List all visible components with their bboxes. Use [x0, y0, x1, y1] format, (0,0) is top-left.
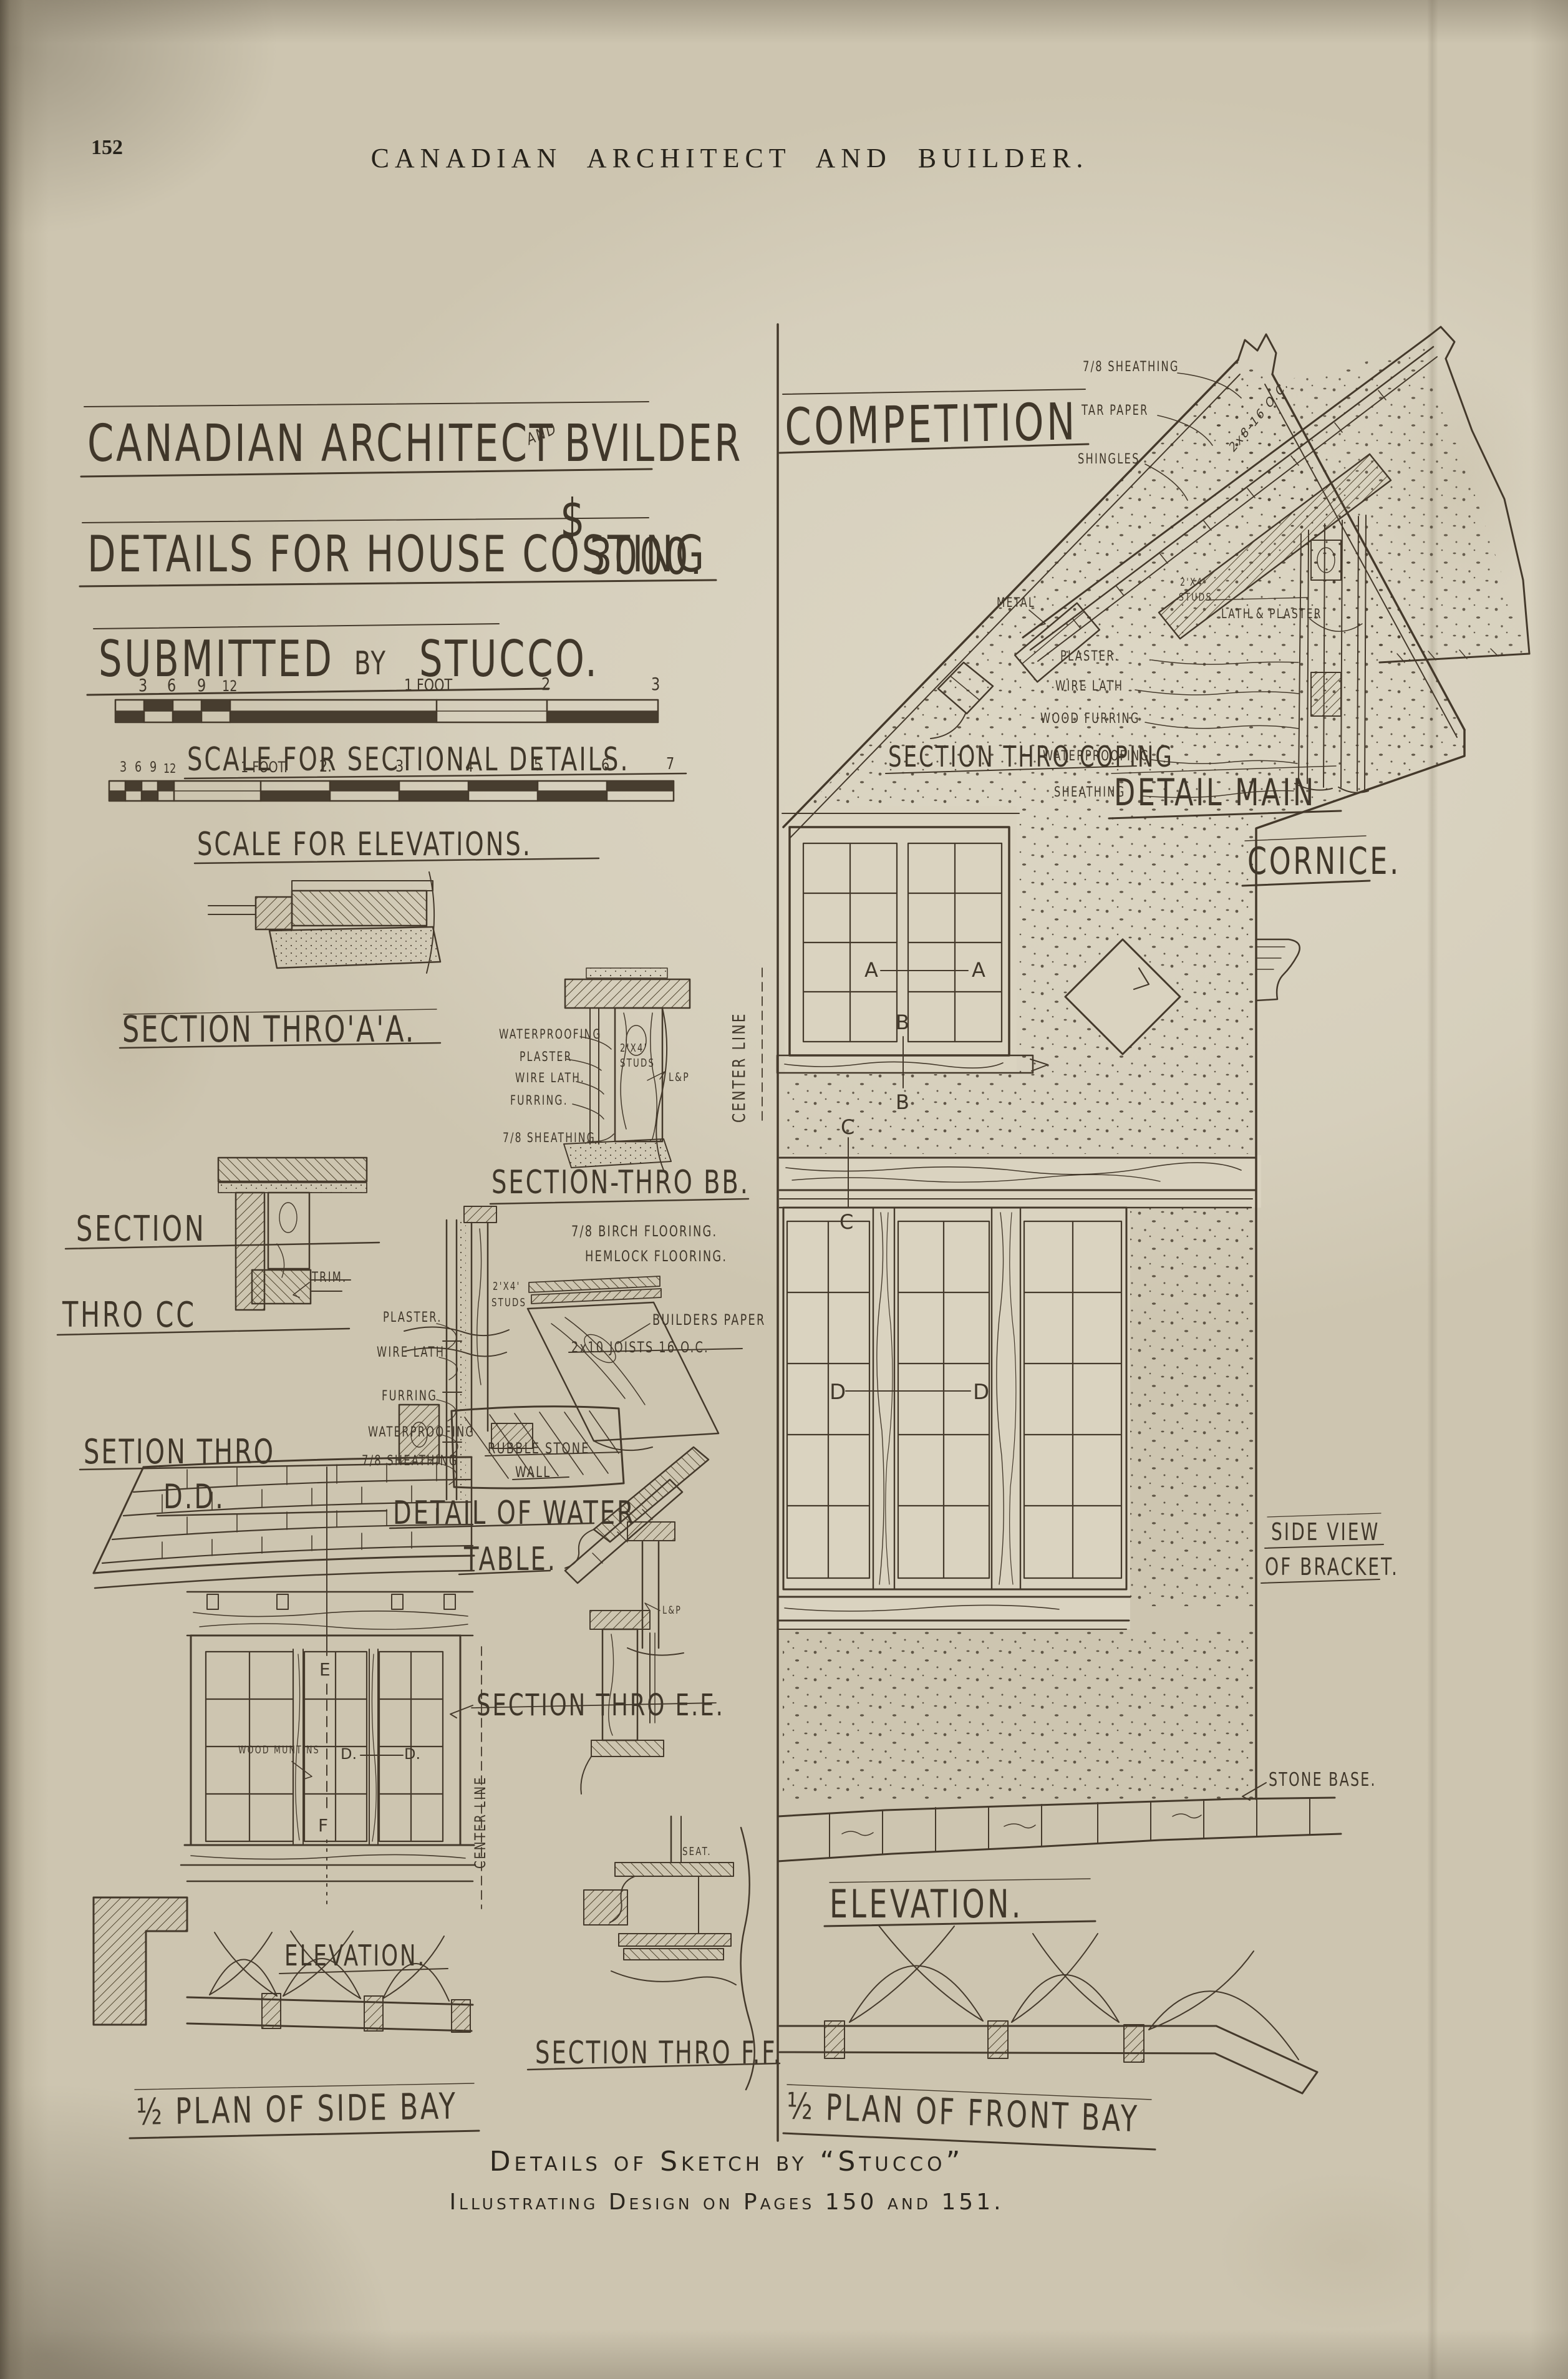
section-bb-label: SECTION-THRO BB.	[491, 1164, 750, 1201]
section-ee-ff-drawing	[450, 1611, 780, 2090]
scale-tick: 1 FOOT.	[241, 758, 288, 776]
scale-tick: 9	[197, 675, 206, 695]
callout: L&P	[669, 1070, 690, 1084]
side-bay-elevation-label: ELEVATION.	[284, 1939, 426, 1972]
trim-callout: TRIM.	[312, 1270, 347, 1286]
coping-label: SECTION THRO COPING	[888, 740, 1174, 773]
scale-tick: 7	[666, 755, 674, 773]
section-ff-label: SECTION THRO F.F.	[535, 2035, 782, 2071]
callout: 2x10 JOISTS 16 O.C.	[571, 1339, 709, 1356]
marker-d-side: D.	[341, 1745, 357, 1763]
scale-tick: 12	[163, 761, 176, 776]
wood-muntins-callout: WOOD MUNTINS	[238, 1744, 320, 1756]
scale-tick: 4	[465, 757, 473, 776]
bracket-label2: OF BRACKET.	[1265, 1553, 1399, 1581]
lath-plaster-callout: LATH & PLASTER	[1221, 606, 1322, 621]
stone-base-label: STONE BASE.	[1269, 1769, 1377, 1791]
section-ee-label: SECTION THRO E.E.	[477, 1688, 725, 1723]
center-line-label-main: CENTER LINE	[728, 1012, 749, 1123]
marker-c: C	[841, 1115, 854, 1139]
scanned-plate-page: 152 CANADIAN ARCHITECT AND BUILDER. CANA…	[0, 0, 1568, 2379]
scale-tick: 3	[395, 757, 404, 776]
scale-tick: 3	[120, 760, 127, 775]
callout: WIRE LATH.	[377, 1345, 449, 1360]
water-table-label1: DETAIL OF WATER	[393, 1495, 636, 1532]
marker-d: D	[973, 1380, 989, 1405]
scale-tick: 6	[601, 756, 609, 775]
plate-title-by: BY	[354, 645, 387, 682]
marker-f: F	[318, 1815, 328, 1836]
plate-title-cost: 3000.	[589, 528, 704, 586]
callout: WATERPROOFING	[368, 1425, 475, 1440]
plate-title-line3: SUBMITTED	[99, 630, 334, 688]
rubble-wall-label1: RUBBLE STONE	[488, 1440, 590, 1457]
callout: HEMLOCK FLOORING.	[585, 1248, 727, 1265]
callout: FURRING.	[510, 1093, 568, 1108]
callout: PLASTER.	[383, 1310, 442, 1325]
callout: 2'X4'	[620, 1042, 648, 1055]
page-number: 152	[91, 136, 123, 160]
scale-tick: 6	[167, 675, 176, 695]
callout: SHINGLES	[1078, 452, 1140, 467]
scale-tick: 3	[651, 674, 660, 694]
marker-d: D	[830, 1380, 846, 1405]
callout: WIRE LATH.	[515, 1070, 585, 1085]
marker-a: A	[864, 958, 878, 982]
water-table-label2: TABLE.	[464, 1541, 557, 1578]
scale-tick: 2	[541, 674, 550, 694]
scale-elevations-label: SCALE FOR ELEVATIONS.	[197, 826, 532, 863]
scale-tick: 12	[222, 677, 237, 695]
scale-tick: 2.	[319, 757, 332, 776]
callout: STUDS	[620, 1057, 655, 1070]
cornice-label2: CORNICE.	[1247, 840, 1401, 883]
caption-line2: Illustrating Design on Pages 150 and 151…	[249, 2189, 1204, 2215]
marker-b: B	[896, 1090, 909, 1114]
callout: FURRING	[382, 1388, 437, 1404]
callout: WATERPROOFING	[499, 1027, 602, 1042]
center-line-label-side: CENTER LINE	[472, 1776, 489, 1869]
scale-tick: 9	[150, 760, 157, 775]
callout: WOOD FURRING	[1040, 711, 1140, 727]
section-dd-label1: SETION THRO	[84, 1432, 275, 1471]
callout: TAR PAPER	[1082, 403, 1149, 419]
water-table-lp: L&P	[662, 1604, 682, 1617]
callout: STUDS	[491, 1296, 526, 1309]
section-dd-label2: D.D.	[163, 1477, 225, 1516]
marker-a: A	[972, 958, 985, 982]
section-cc-label1: SECTION	[76, 1209, 206, 1249]
callout: 7/8 SHEATHING	[503, 1130, 596, 1145]
scale-tick: 1 FOOT	[404, 676, 452, 695]
section-aa-label: SECTION THRO'A'A.	[122, 1008, 415, 1050]
section-cc-label2: THRO CC	[62, 1295, 196, 1335]
main-elevation-label: ELEVATION.	[830, 1881, 1024, 1927]
callout: PLASTER	[520, 1049, 573, 1064]
marker-c: C	[840, 1210, 853, 1234]
marker-b: B	[896, 1010, 909, 1034]
callout: PLASTER.	[1060, 649, 1120, 664]
callout: WIRE LATH	[1055, 679, 1123, 694]
marker-e: E	[319, 1659, 331, 1680]
plate-title-bvilder: BVILDER	[564, 414, 743, 473]
bracket-label1: SIDE VIEW	[1271, 1518, 1380, 1546]
scale-tick: 3	[138, 675, 147, 695]
cornice-label1: DETAIL MAIN	[1114, 771, 1316, 815]
callout: 7/8 SHEATHING	[362, 1453, 458, 1469]
callout: 7/8 SHEATHING	[1083, 359, 1179, 375]
callout: 2'X4'	[1180, 576, 1207, 589]
side-bay-plan-label: ½ PLAN OF SIDE BAY	[136, 2085, 458, 2133]
marker-d-side: D.	[404, 1745, 420, 1763]
plate-title-competition: COMPETITION	[785, 392, 1078, 457]
plate-drawing	[0, 0, 1568, 2379]
caption-line1: Details of Sketch by “Stucco”	[249, 2146, 1204, 2178]
scale-tick: 5	[534, 756, 542, 775]
seat-callout: SEAT.	[682, 1845, 712, 1858]
dollar-sign: $	[560, 488, 586, 549]
callout: 2'X4'	[493, 1280, 521, 1293]
callout: 7/8 BIRCH FLOORING.	[571, 1223, 717, 1240]
callout: STUDS	[1179, 591, 1212, 604]
masthead: CANADIAN ARCHITECT AND BUILDER.	[262, 142, 1198, 174]
scale-tick: 6	[135, 760, 142, 775]
plate-title-line1: CANADIAN ARCHITECT	[87, 414, 555, 473]
callout: BUILDERS PAPER	[652, 1311, 766, 1329]
metal-callout: METAL	[997, 595, 1035, 610]
rubble-wall-label2: WALL	[515, 1463, 551, 1481]
